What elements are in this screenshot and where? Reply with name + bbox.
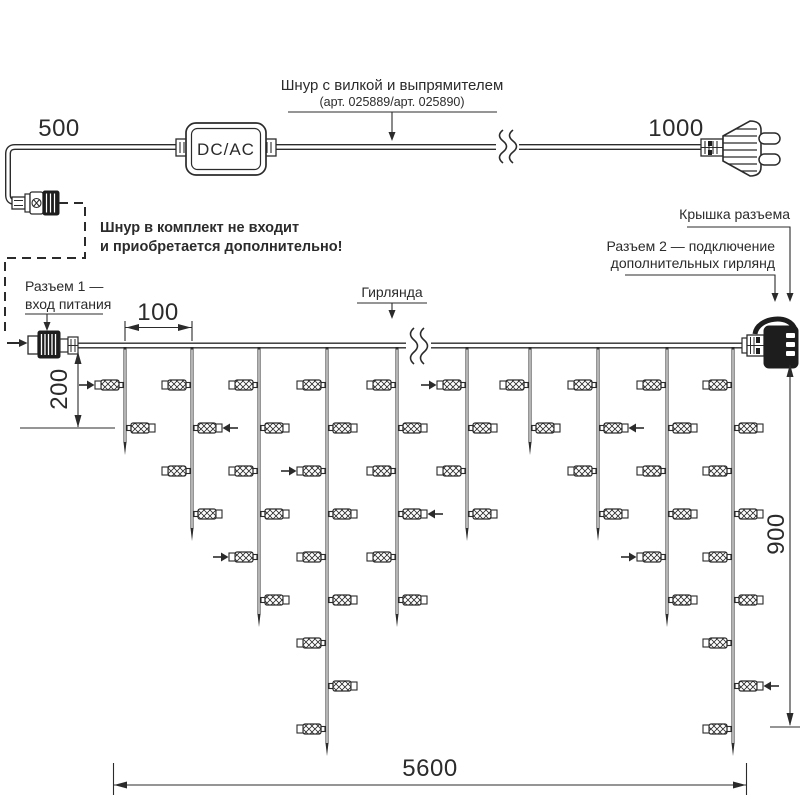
led-body [604,423,622,433]
led-body [403,509,421,519]
led-cap [351,510,357,518]
led-cap [691,510,697,518]
led-body [373,380,391,390]
led-cap [757,596,763,604]
leader-connector-2 [625,275,779,302]
led-cap [703,381,709,389]
connector-2-label-line1: Разъем 2 — подключение [606,238,775,254]
dashed-path-arrow [19,339,28,347]
led-body [101,380,119,390]
led-cap [757,682,763,690]
led-body [373,552,391,562]
led-body [333,681,351,691]
led-body [473,509,491,519]
connector-2-label-line2: дополнительных гирлянд [611,255,775,271]
led-body [235,466,253,476]
led-body [303,724,321,734]
cord-title: Шнур с вилкой и выпрямителем [281,77,504,94]
led-cap [500,381,506,389]
led-cap [229,553,235,561]
led-body [709,638,727,648]
dim-first-drop-200: 200 [20,352,115,429]
garland-drop [162,347,238,541]
led-body [709,380,727,390]
led-body [673,423,691,433]
garland-drops [79,347,779,756]
led-cap [703,467,709,475]
led-pointer [289,467,297,476]
led-body [373,466,391,476]
led-body [673,509,691,519]
led-body [131,423,149,433]
led-cap [297,467,303,475]
drop-tip [466,528,469,541]
cord-plug-collar [25,194,30,212]
leader-garland-label [357,303,427,319]
led-pointer [629,424,637,433]
led-cap [229,381,235,389]
led-cap [216,510,222,518]
led-cap [554,424,560,432]
led-cap [568,467,574,475]
led-cap [216,424,222,432]
led-cap [691,424,697,432]
led-pointer [87,381,95,390]
garland-spec-diagram: DC/AC [0,0,800,800]
drop-tip [326,743,329,756]
led-body [168,466,186,476]
garland-drop [213,347,289,627]
converter-label: DC/AC [197,140,255,159]
led-body [709,552,727,562]
led-cap [703,639,709,647]
drop-tip [396,614,399,627]
garland-drop [621,347,697,627]
led-body [739,423,757,433]
led-cap [421,596,427,604]
dim-200-value: 200 [46,368,73,410]
cap-label: Крышка разъема [679,206,790,222]
dim-100-value: 100 [137,299,179,326]
drop-tip [666,614,669,627]
led-pointer [764,682,772,691]
led-body [443,466,461,476]
led-pointer [629,553,637,562]
led-body [303,638,321,648]
led-cap [491,424,497,432]
led-body [333,423,351,433]
drop-tip [191,528,194,541]
led-body [235,552,253,562]
led-cap [367,467,373,475]
led-neck [186,469,190,474]
led-cap [229,467,235,475]
led-body [739,595,757,605]
led-body [198,423,216,433]
led-body [303,552,321,562]
garland-drop [500,347,560,455]
led-cap [437,381,443,389]
dim-5600-value: 5600 [402,755,457,782]
dc-ac-converter: DC/AC [176,123,276,175]
led-cap [637,381,643,389]
led-body [235,380,253,390]
led-body [709,724,727,734]
plug-pin-bottom [759,154,780,165]
led-cap [757,424,763,432]
dim-1000-value: 1000 [648,115,703,142]
led-body [506,380,524,390]
led-body [303,466,321,476]
led-neck [253,469,257,474]
led-body [403,595,421,605]
plug-pin-top [759,133,780,144]
cord-note-line1: Шнур в комплект не входит [100,220,299,236]
garland-drop [281,347,357,756]
cord-break-symbol [496,130,519,163]
led-cap [703,725,709,733]
led-cap [297,553,303,561]
led-cap [297,725,303,733]
led-body [643,466,661,476]
led-cap [421,510,427,518]
garland-drop [568,347,644,541]
led-body [265,423,283,433]
garland-label: Гирлянда [361,284,423,300]
led-body [536,423,554,433]
drop-tip [597,528,600,541]
led-cap [283,596,289,604]
led-cap [367,381,373,389]
led-cap [283,510,289,518]
led-body [673,595,691,605]
cord-plug-tip [12,197,25,209]
led-cap [162,467,168,475]
garland-drop [367,347,443,627]
dim-width-5600: 5600 [114,755,747,795]
garland-break-symbol [406,328,431,364]
led-cap [491,510,497,518]
led-body [403,423,421,433]
led-body [443,380,461,390]
led-cap [637,553,643,561]
led-cap [691,596,697,604]
led-cap [351,596,357,604]
led-cap [437,467,443,475]
garland-drop [79,347,155,455]
dim-drop-spacing-100: 100 [125,299,192,341]
cord-subtitle: (арт. 025889/арт. 025890) [319,95,464,109]
power-cord [8,130,702,202]
drop-tip [732,743,735,756]
led-body [265,595,283,605]
dim-500-value: 500 [38,115,80,142]
led-pointer [429,381,437,390]
led-neck [253,383,257,388]
drop-tip [258,614,261,627]
led-body [604,509,622,519]
led-cap [703,553,709,561]
dim-900-value: 900 [763,513,790,555]
led-cap [162,381,168,389]
led-body [643,380,661,390]
led-cap [367,553,373,561]
led-cap [622,510,628,518]
plug-cord-adapter [701,139,723,156]
led-body [333,509,351,519]
led-body [739,681,757,691]
led-cap [149,424,155,432]
led-cap [297,381,303,389]
cord-note-line2: и приобретается дополнительно! [100,239,342,255]
drop-tip [529,442,532,455]
led-body [574,380,592,390]
led-body [643,552,661,562]
connector-1-label-line2: вход питания [25,296,111,312]
led-cap [351,424,357,432]
connector-1 [28,331,78,358]
led-body [265,509,283,519]
diagram-canvas: DC/AC [0,0,800,800]
leader-connector-1 [25,314,103,331]
led-body [739,509,757,519]
led-body [709,466,727,476]
led-cap [421,424,427,432]
led-cap [622,424,628,432]
leader-cord-title [288,112,497,141]
led-pointer [428,510,436,519]
led-pointer [223,424,231,433]
led-neck [253,555,257,560]
connector-2-with-cap [742,319,798,368]
led-cap [568,381,574,389]
led-body [333,595,351,605]
led-pointer [221,553,229,562]
led-cap [95,381,101,389]
connector-1-label-line1: Разъем 1 — [25,278,103,294]
cord-end-connector [12,191,59,215]
led-body [574,466,592,476]
led-body [168,380,186,390]
led-cap [351,682,357,690]
drop-tip [124,442,127,455]
led-cap [283,424,289,432]
led-body [473,423,491,433]
led-cap [297,639,303,647]
led-neck [186,383,190,388]
led-body [198,509,216,519]
dim-height-900: 900 [763,364,800,727]
led-cap [637,467,643,475]
led-body [303,380,321,390]
mains-plug [701,121,780,176]
